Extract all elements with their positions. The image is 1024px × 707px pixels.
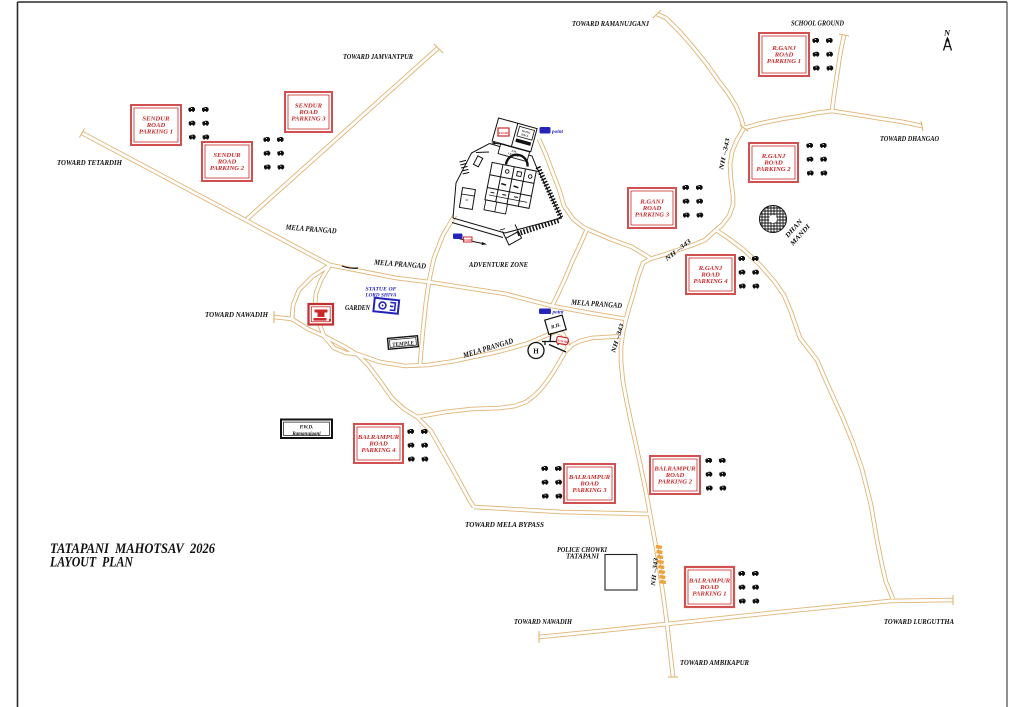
svg-text:PARKING 3: PARKING 3	[572, 487, 607, 494]
svg-text:PARKING 4: PARKING 4	[693, 278, 728, 285]
svg-text:PARKING 1: PARKING 1	[692, 591, 726, 598]
svg-text:FOOD: FOOD	[464, 239, 472, 242]
svg-text:TATAPANI: TATAPANI	[566, 554, 599, 561]
svg-text:GARDEN: GARDEN	[345, 305, 371, 312]
svg-text:PARKING 1: PARKING 1	[767, 58, 801, 65]
svg-text:PARKING 2: PARKING 2	[658, 479, 693, 486]
svg-text:PARKING 1: PARKING 1	[139, 129, 173, 136]
svg-text:ADVENTURE ZONE: ADVENTURE ZONE	[468, 260, 528, 269]
svg-text:TOWARD RAMANUJGANJ: TOWARD RAMANUJGANJ	[572, 19, 650, 28]
svg-text:P.W.D.: P.W.D.	[300, 426, 314, 431]
svg-text:TOWARD JAMVANTPUR: TOWARD JAMVANTPUR	[343, 52, 413, 61]
svg-text:FOOD: FOOD	[499, 131, 509, 135]
svg-text:TOWARD DHANGAO: TOWARD DHANGAO	[880, 134, 939, 143]
svg-text:point: point	[551, 129, 564, 135]
svg-text:point: point	[552, 310, 565, 316]
svg-text:LAYOUT PLAN: LAYOUT PLAN	[49, 555, 133, 571]
svg-text:LORD SHIVA: LORD SHIVA	[364, 293, 397, 299]
svg-text:PARKING 3: PARKING 3	[291, 116, 326, 123]
svg-text:H: H	[533, 348, 539, 356]
svg-text:PARKING 2: PARKING 2	[756, 166, 791, 173]
svg-text:Ramanujganj: Ramanujganj	[292, 432, 321, 437]
svg-text:TOWARD NAWADIH: TOWARD NAWADIH	[205, 310, 269, 319]
svg-text:PARKING 4: PARKING 4	[361, 447, 396, 454]
svg-text:TOWARD AMBIKAPUR: TOWARD AMBIKAPUR	[680, 658, 749, 667]
svg-text:PARKING 3: PARKING 3	[635, 212, 670, 219]
svg-text:TOWARD MELA BYPASS: TOWARD MELA BYPASS	[465, 520, 545, 529]
svg-text:SCHOOL GROUND: SCHOOL GROUND	[791, 19, 844, 28]
svg-text:TOWARD TETARDIH: TOWARD TETARDIH	[57, 158, 123, 167]
svg-text:TOWARD NAWADIH: TOWARD NAWADIH	[514, 617, 573, 626]
svg-text:TOWARD LURGUTTHA: TOWARD LURGUTTHA	[884, 617, 954, 626]
svg-text:PARKING 2: PARKING 2	[210, 165, 245, 172]
svg-text:N: N	[943, 28, 951, 38]
